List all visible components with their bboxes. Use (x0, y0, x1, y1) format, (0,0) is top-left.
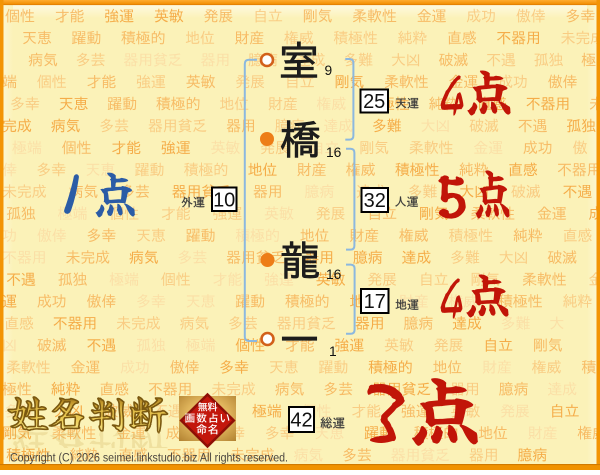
svg-text:10: 10 (213, 189, 235, 211)
svg-text:16: 16 (326, 145, 342, 160)
svg-text:Copyright (C) 2026 seimei.link: Copyright (C) 2026 seimei.linkstudio.biz… (10, 453, 288, 465)
svg-text:25: 25 (363, 91, 385, 113)
svg-text:32: 32 (364, 190, 386, 212)
svg-text:1: 1 (329, 344, 337, 359)
svg-text:16: 16 (326, 267, 342, 282)
svg-text:17: 17 (364, 291, 386, 313)
svg-text:9: 9 (325, 63, 333, 78)
svg-text:42: 42 (290, 410, 312, 432)
